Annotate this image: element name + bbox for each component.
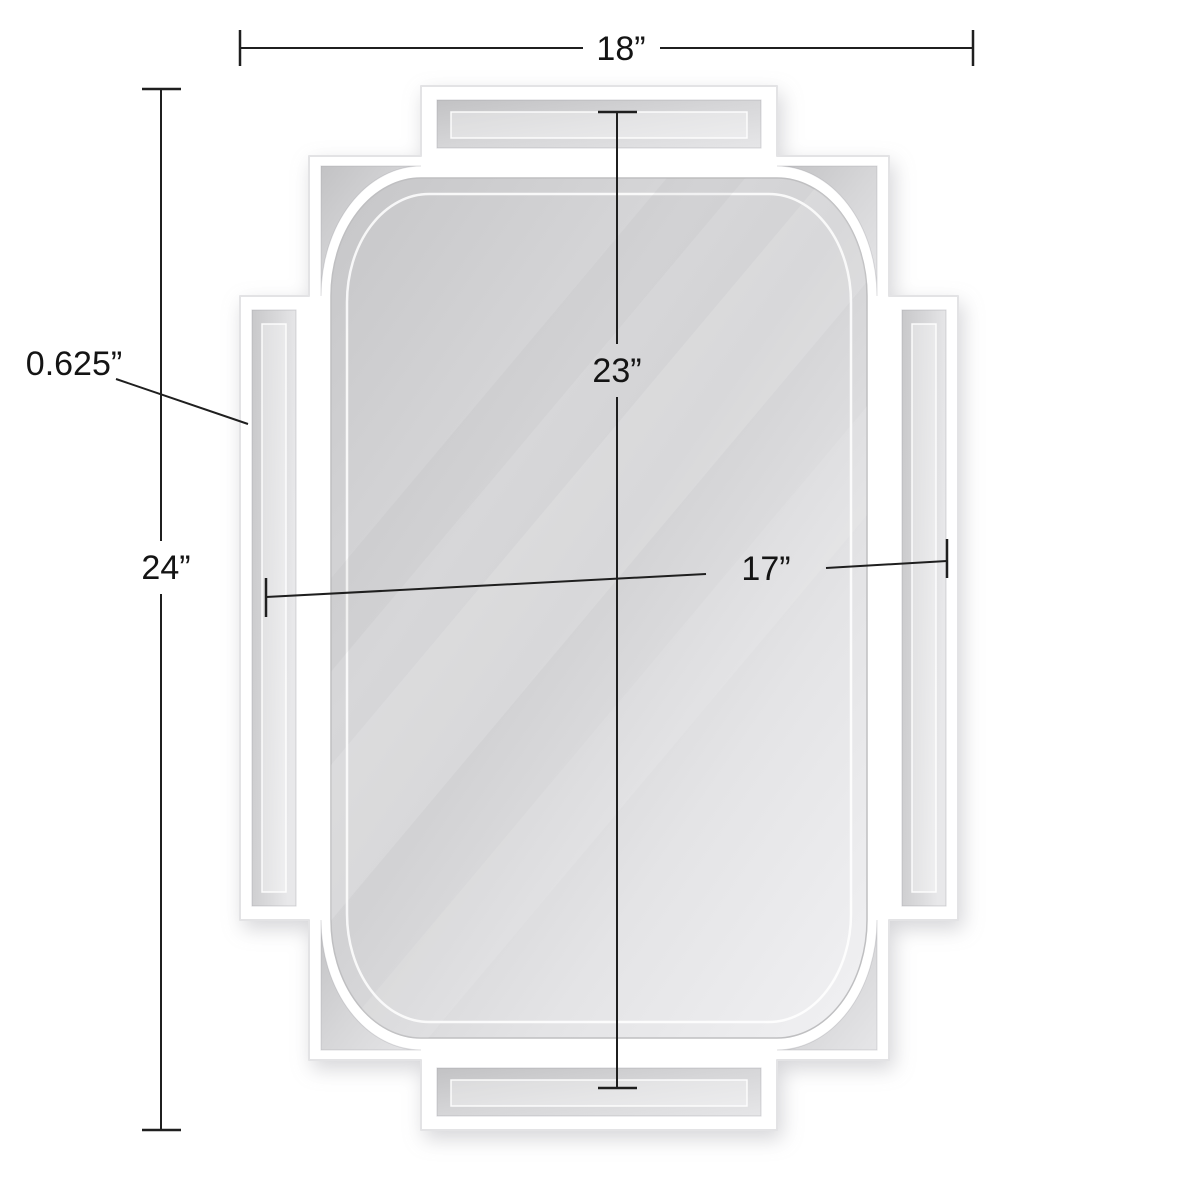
frame-depth-label: 0.625” <box>26 345 122 383</box>
mirror-width-label: 17” <box>741 550 790 588</box>
dimension-overall-width: 18” <box>240 30 973 68</box>
overall-width-label: 18” <box>596 30 645 68</box>
frame-panel-top-bevel <box>451 112 747 138</box>
frame-panel-bottom-bevel <box>451 1080 747 1106</box>
mirror-dimension-diagram: 18” 24” 0.625” 23” 17 <box>0 0 1200 1200</box>
overall-height-label: 24” <box>141 549 190 587</box>
depth-leader-line <box>116 379 248 424</box>
frame-panel-right-bevel <box>912 324 936 892</box>
diagram-canvas: 18” 24” 0.625” 23” 17 <box>0 0 1200 1200</box>
mirror-height-label: 23” <box>592 352 641 390</box>
mirror <box>0 0 1200 1200</box>
dimension-frame-depth: 0.625” <box>26 345 248 424</box>
dimension-overall-height: 24” <box>141 89 190 1130</box>
